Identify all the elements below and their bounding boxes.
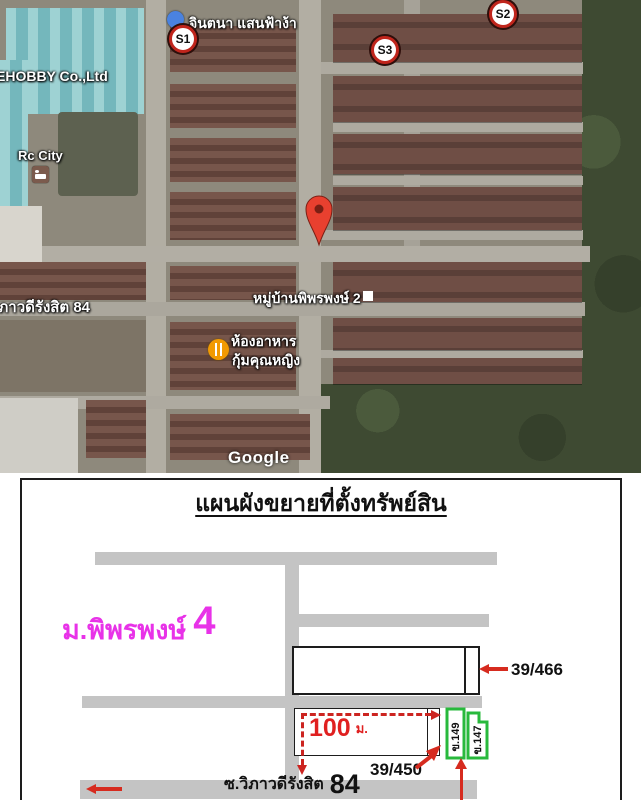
- building-row: [170, 192, 296, 240]
- plan-road-name: ซ.วิภาวดีรังสิต 84: [224, 774, 360, 795]
- building-row: [86, 400, 146, 458]
- arrow-39-450: [414, 744, 444, 772]
- building-39-466: [292, 646, 480, 695]
- screenshot-root: จินตนา แสนฟ้าง้า S1 S2 S3 EHOBBY Co.,Ltd…: [0, 0, 641, 800]
- map-road: [0, 246, 590, 262]
- restaurant-label-line2[interactable]: กุ้มคุณหญิง: [232, 350, 300, 372]
- building-row: [333, 14, 582, 62]
- marker-s1[interactable]: S1: [169, 25, 197, 53]
- plan-road-stub: [299, 614, 489, 627]
- direction-arrow-line: [96, 787, 122, 791]
- company-label[interactable]: EHOBBY Co.,Ltd: [0, 68, 108, 84]
- building-row: [170, 138, 296, 182]
- arrow-39-466-line: [488, 667, 508, 671]
- village-map-label[interactable]: หมู่บ้านพิพรพงษ์ 2: [253, 288, 361, 310]
- white-building: [0, 206, 42, 262]
- measure-line-vertical: [301, 713, 304, 765]
- building-row: [333, 76, 582, 122]
- pointer-arrow-line: [460, 768, 463, 800]
- village-name-number: 4: [193, 608, 215, 634]
- satellite-map[interactable]: จินตนา แสนฟ้าง้า S1 S2 S3 EHOBBY Co.,Ltd…: [0, 0, 641, 473]
- unit-divider: [464, 648, 466, 693]
- green-field: [312, 384, 641, 473]
- map-road: [321, 62, 583, 74]
- road-map-label[interactable]: วิภาวดีรังสิต 84: [0, 295, 90, 319]
- green-unit-1-label: ข.149: [446, 717, 464, 757]
- building-row: [170, 84, 296, 128]
- direction-arrow-head: [86, 784, 96, 794]
- map-road: [333, 176, 583, 185]
- village-name: ม.พิพรพงษ์ 4: [62, 608, 215, 651]
- site-plan-diagram: แผนผังขยายที่ตั้งทรัพย์สิน ม.พิพรพงษ์ 4 …: [20, 478, 622, 800]
- location-pin-icon[interactable]: [303, 193, 335, 247]
- building-block: [0, 320, 146, 392]
- house-a-label: 39/466: [511, 660, 563, 680]
- green-unit-2-label: ข.147: [468, 720, 486, 760]
- plan-road-middle: [82, 696, 482, 708]
- plan-road-name-number: 84: [330, 774, 360, 795]
- map-road: [333, 122, 583, 132]
- distance-value: 100: [309, 717, 351, 739]
- building-row: [333, 134, 582, 174]
- village-square-icon: [363, 291, 373, 301]
- building-row: [333, 187, 582, 230]
- marker-s3[interactable]: S3: [371, 36, 399, 64]
- measure-arrow-right: [431, 710, 441, 720]
- white-building: [0, 398, 78, 473]
- rc-city-label[interactable]: Rc City: [18, 148, 63, 163]
- pointer-arrow-head: [455, 758, 467, 769]
- map-road: [321, 350, 583, 358]
- restaurant-icon[interactable]: [208, 339, 229, 360]
- google-watermark: Google: [228, 448, 290, 468]
- plan-title: แผนผังขยายที่ตั้งทรัพย์สิน: [22, 486, 620, 522]
- map-road: [321, 230, 583, 240]
- plan-road-name-text: ซ.วิภาวดีรังสิต: [224, 775, 324, 795]
- distance-unit: ม.: [356, 718, 368, 739]
- distance-label: 100 ม.: [309, 717, 368, 739]
- arrow-39-466-head: [479, 664, 489, 674]
- gokart-track: [58, 112, 138, 196]
- place-label[interactable]: จินตนา แสนฟ้าง้า: [189, 13, 297, 35]
- building-row: [333, 358, 582, 384]
- building-row: [333, 318, 582, 350]
- marker-s2[interactable]: S2: [489, 0, 517, 28]
- village-name-text: ม.พิพรพงษ์: [62, 608, 186, 651]
- lodging-icon[interactable]: [32, 166, 49, 183]
